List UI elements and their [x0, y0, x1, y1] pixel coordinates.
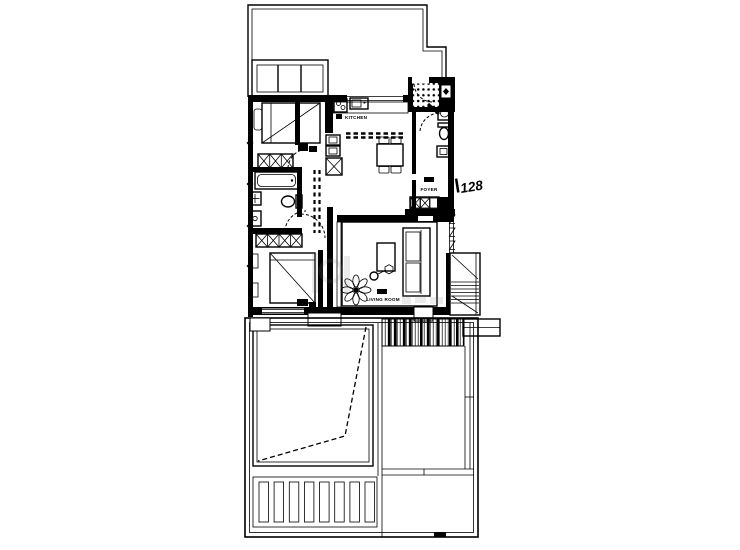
stair-enclosure — [450, 253, 480, 315]
dining-table-icon — [377, 144, 403, 166]
unit-number: 128 — [459, 178, 484, 196]
kitchen-label-icon — [336, 114, 342, 119]
slat-band — [253, 477, 377, 527]
break-mark-icon — [450, 228, 456, 237]
floor-plan-page: FOYER 128 KITCHEN — [0, 0, 740, 550]
powder-cabinet-inner — [440, 149, 447, 155]
left-exterior-wall — [248, 95, 253, 317]
hallway — [315, 170, 320, 233]
door-swing-icon — [301, 214, 325, 238]
roof-below-dashed-line — [258, 327, 366, 461]
sofa-cushion — [406, 263, 420, 292]
burner — [341, 106, 345, 110]
terrace-step — [250, 318, 270, 331]
cabinet-knob — [253, 216, 257, 220]
nightstand — [309, 302, 316, 307]
toilet-bowl-icon — [282, 196, 295, 207]
deck-hatch — [382, 319, 464, 346]
bathroom-bottom-wall — [248, 228, 302, 234]
terrace-inner — [250, 323, 474, 533]
foyer-furniture-icon — [424, 177, 434, 182]
entry-mat-icon — [413, 83, 439, 107]
unit-number-marker: 128 — [455, 175, 484, 197]
foyer-living-opening — [418, 216, 433, 221]
lower-terrace — [245, 318, 500, 537]
sink-basin — [352, 100, 361, 107]
living-label-icon — [377, 289, 387, 294]
top-wall — [248, 95, 332, 102]
bedroom-1 — [254, 103, 320, 168]
kitchen-pier — [325, 95, 333, 133]
stair-diagonal — [452, 255, 478, 279]
oven-inner — [329, 137, 337, 143]
faucet-dot — [363, 101, 365, 103]
sofa-cushion — [406, 232, 420, 261]
bay-window — [252, 60, 328, 97]
sofa-icon — [403, 228, 430, 296]
dresser — [309, 146, 317, 152]
drain-dot — [291, 179, 293, 181]
floor-plan-drawing: FOYER 128 KITCHEN — [0, 0, 740, 550]
corridor-wall — [412, 112, 416, 174]
oven-tower — [326, 135, 340, 145]
oven-tower — [326, 146, 340, 156]
toilet-bowl-icon — [440, 128, 449, 140]
foyer-wall — [405, 209, 455, 215]
living-room-label: LIVING ROOM — [366, 297, 400, 302]
powder-door-swing-icon — [420, 113, 439, 131]
side-table — [370, 272, 378, 280]
terrace-bottom-tick — [434, 532, 446, 537]
break-mark-icon — [450, 241, 456, 250]
nightstand — [254, 109, 262, 130]
bay-window-frame — [252, 60, 328, 97]
stair-diagonal — [452, 296, 478, 313]
closet-shelf — [430, 198, 438, 208]
bedroom2-door-threshold — [308, 313, 341, 326]
terrace-left-panel-inner — [257, 329, 369, 462]
bed-diagonal — [270, 253, 315, 303]
dining-set — [377, 137, 403, 173]
foyer-label: FOYER — [420, 187, 438, 192]
bay-window-inner — [257, 65, 323, 92]
chair — [379, 167, 389, 174]
kitchen-label: KITCHEN — [345, 115, 368, 120]
bathtub-inner — [258, 175, 296, 187]
terrace-inner-line — [252, 9, 442, 78]
entry-door-opening — [412, 77, 429, 84]
oven-inner — [329, 148, 337, 154]
chair — [391, 167, 401, 174]
pergola-slats — [253, 477, 377, 527]
nightstand — [297, 299, 308, 306]
floor-lamp-icon — [385, 265, 393, 274]
staircase — [446, 253, 480, 315]
living-side-wall — [327, 207, 333, 307]
living-top-wall — [337, 215, 454, 222]
kitchen: KITCHEN — [326, 98, 408, 175]
